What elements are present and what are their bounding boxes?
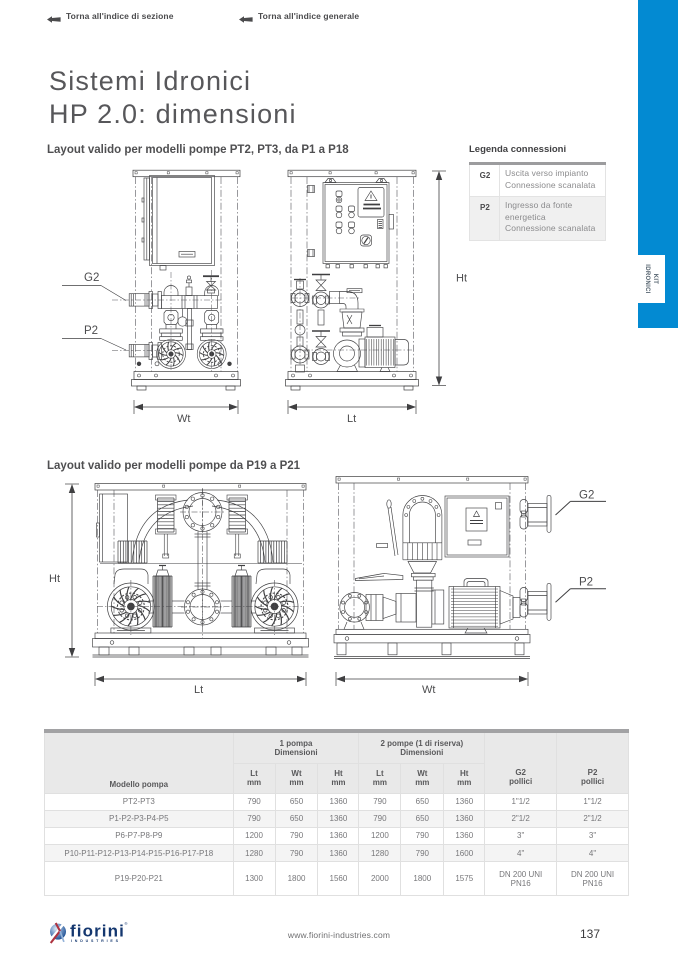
svg-text:Ht: Ht bbox=[456, 273, 467, 285]
svg-text:Lt: Lt bbox=[194, 684, 203, 696]
svg-text:Ht: Ht bbox=[49, 573, 60, 585]
svg-text:®: ® bbox=[125, 921, 128, 926]
svg-text:G2: G2 bbox=[84, 272, 99, 284]
svg-text:P2: P2 bbox=[84, 325, 98, 337]
svg-text:G2: G2 bbox=[579, 490, 594, 502]
svg-text:P2: P2 bbox=[579, 577, 593, 589]
svg-text:Lt: Lt bbox=[347, 413, 356, 425]
svg-text:Wt: Wt bbox=[177, 413, 190, 425]
svg-text:Wt: Wt bbox=[422, 684, 435, 696]
